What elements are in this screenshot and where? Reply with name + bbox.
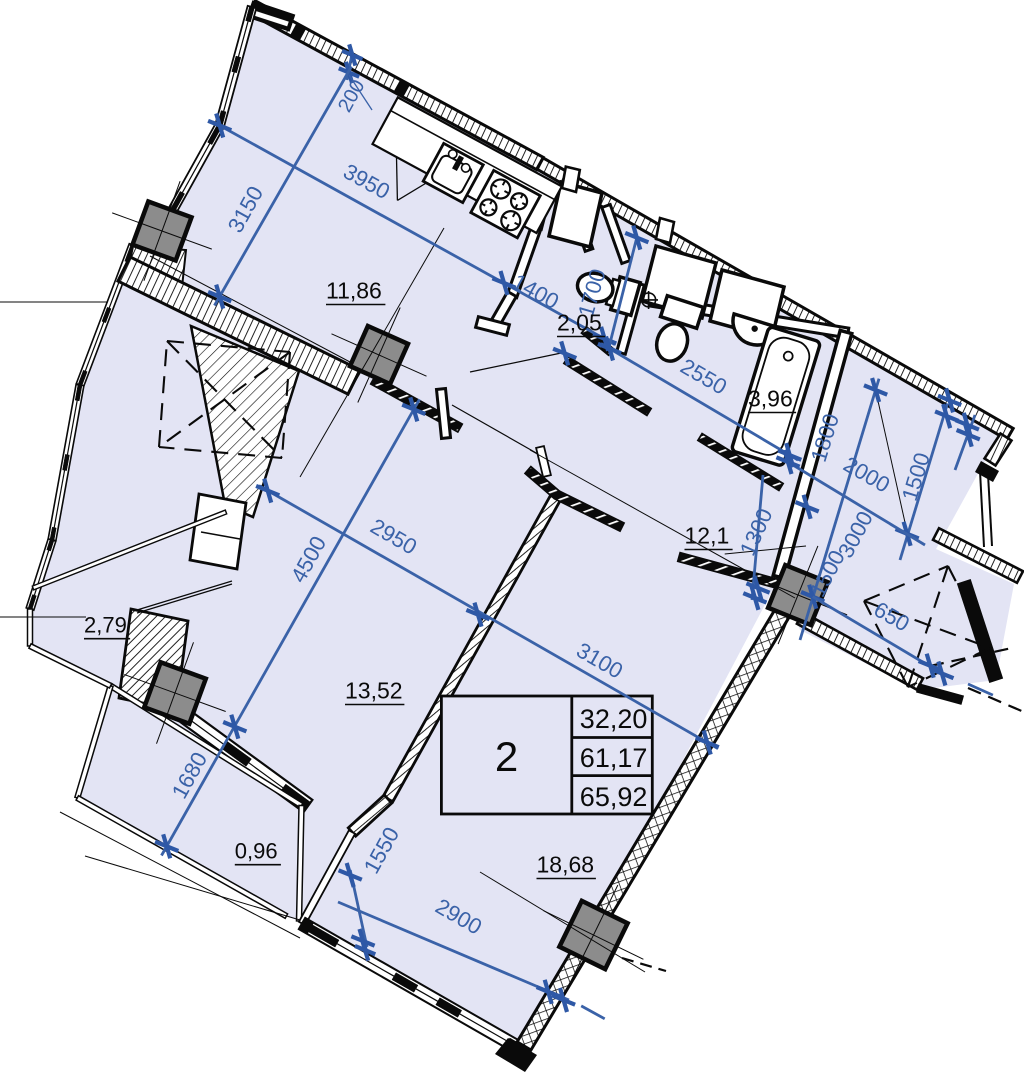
svg-text:3,96: 3,96 (748, 386, 793, 412)
svg-text:0,96: 0,96 (235, 839, 278, 864)
svg-text:11,86: 11,86 (326, 278, 382, 304)
svg-text:13,52: 13,52 (345, 678, 403, 704)
svg-text:12,1: 12,1 (685, 523, 730, 549)
svg-text:61,17: 61,17 (580, 743, 648, 773)
svg-text:2: 2 (495, 733, 518, 780)
svg-text:2,05: 2,05 (557, 310, 602, 336)
svg-text:2,79: 2,79 (84, 613, 127, 638)
svg-text:32,20: 32,20 (580, 704, 648, 734)
svg-text:65,92: 65,92 (580, 782, 648, 812)
svg-text:18,68: 18,68 (537, 852, 595, 878)
